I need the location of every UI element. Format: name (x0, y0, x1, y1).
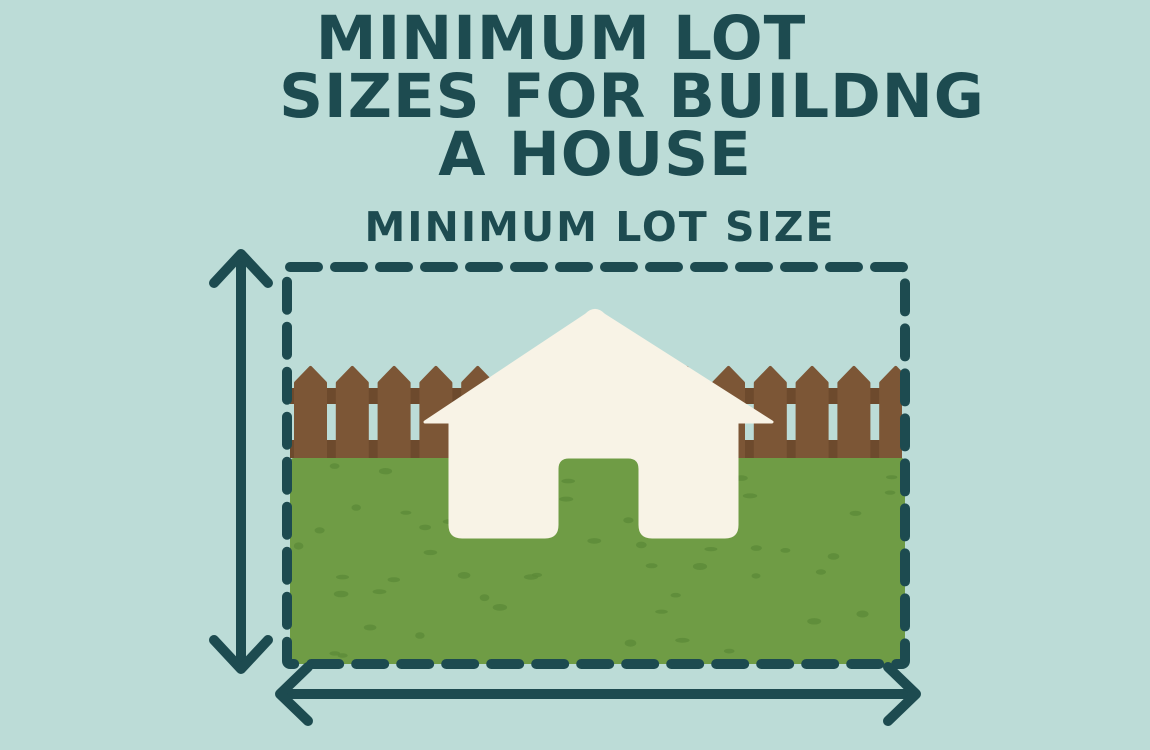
vertical-dimension-arrow (214, 254, 268, 669)
horizontal-dimension-arrow (280, 667, 916, 721)
infographic: MINIMUM LOT SIZES FOR BUILDNG A HOUSE MI… (0, 0, 1150, 750)
lot-diagram (0, 0, 1150, 750)
grass-area (290, 458, 905, 664)
